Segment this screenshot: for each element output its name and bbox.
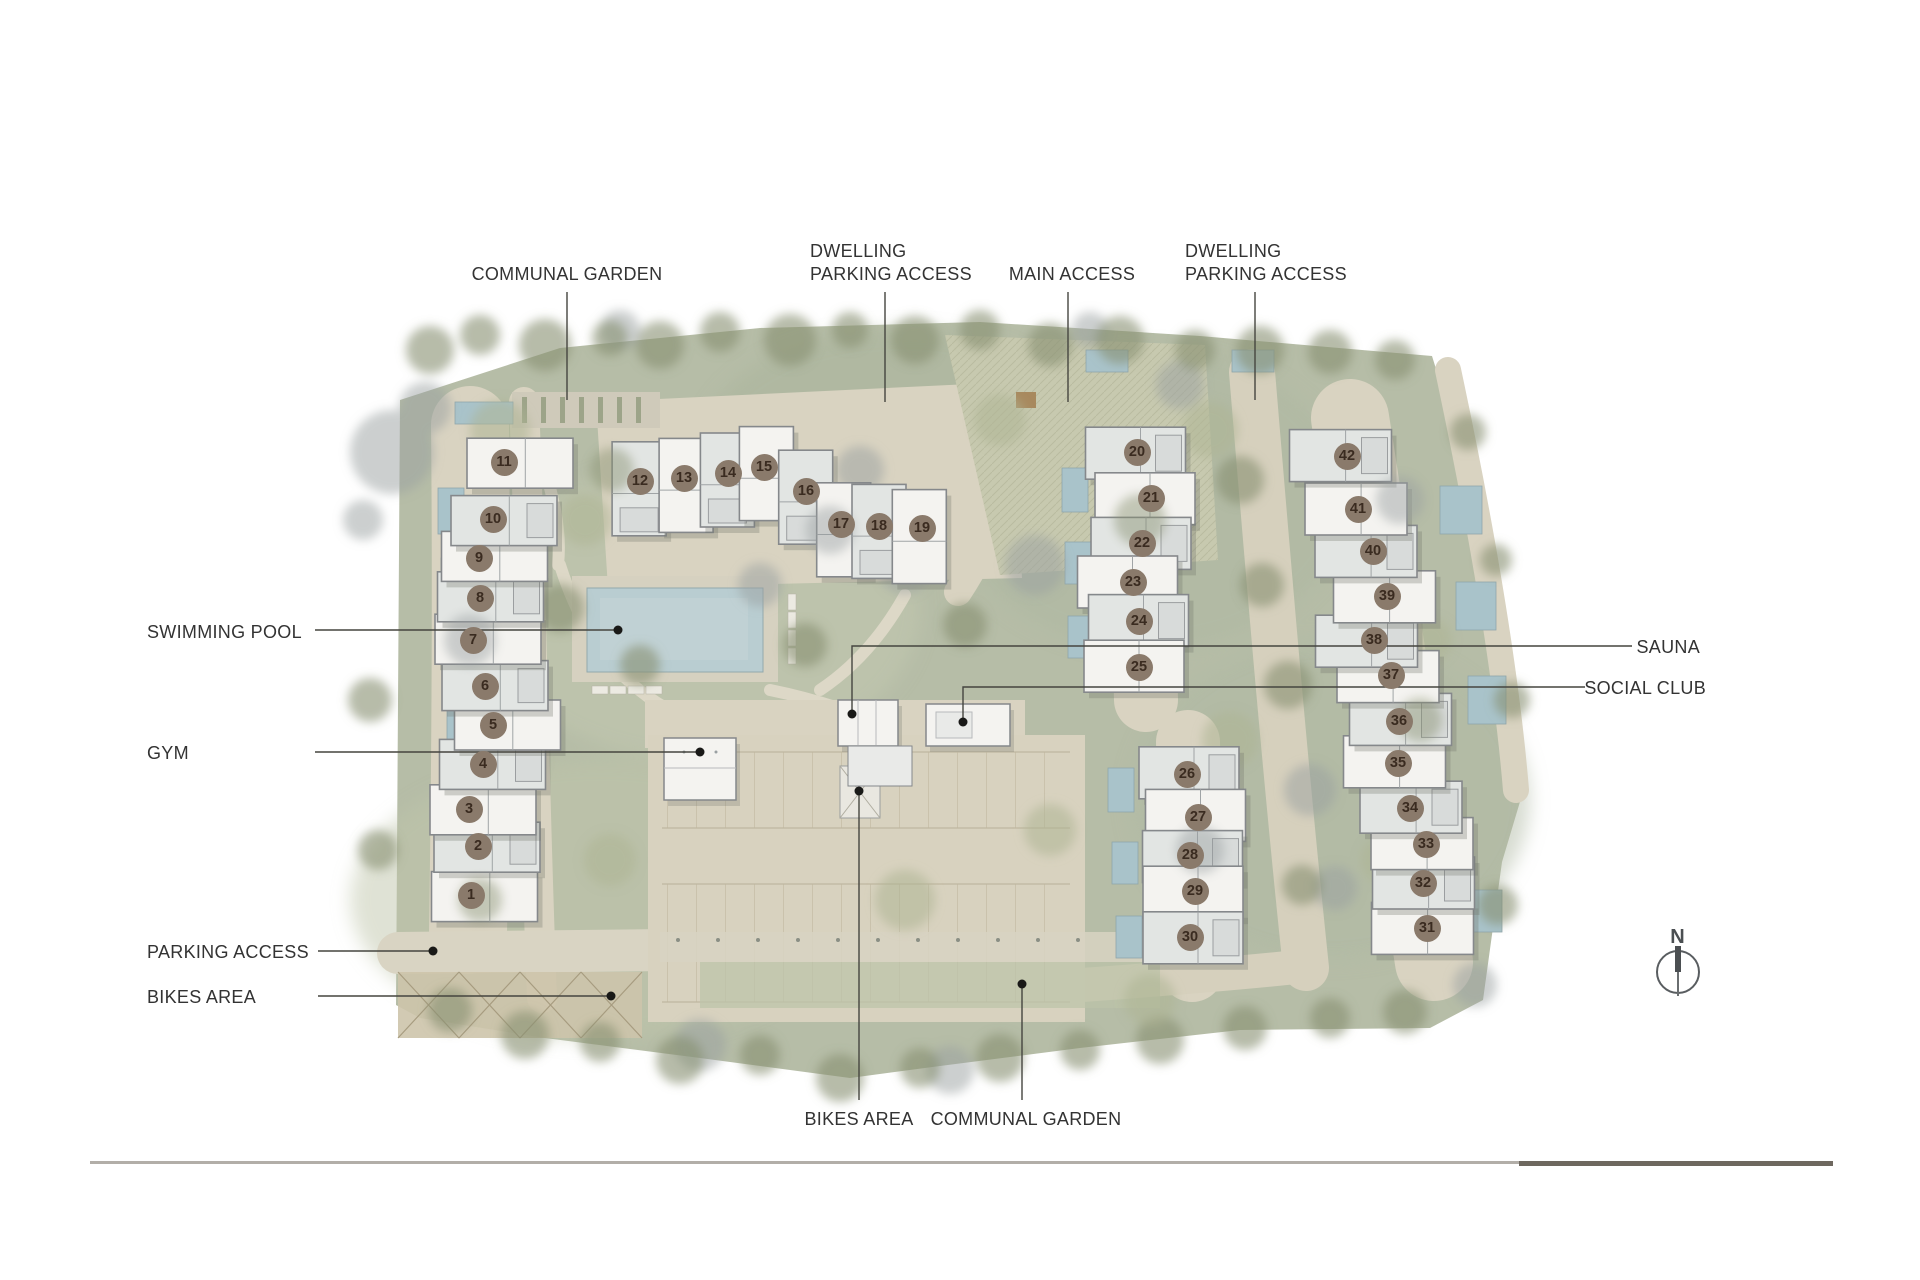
unit-marker-30: 30 [1177, 924, 1204, 951]
compass-north-indicator: N [1656, 926, 1700, 998]
unit-marker-36: 36 [1386, 708, 1413, 735]
leader-communal-garden-bottom [1018, 980, 1027, 1101]
unit-marker-6: 6 [472, 673, 499, 700]
unit-marker-13: 13 [671, 465, 698, 492]
label-communal-garden-bottom-line-1: COMMUNAL GARDEN [931, 1108, 1122, 1131]
scale-bar-dark-segment [1519, 1161, 1833, 1166]
unit-marker-40: 40 [1360, 538, 1387, 565]
unit-marker-32: 32 [1410, 870, 1437, 897]
label-gym-line-1: GYM [147, 742, 189, 765]
label-social-club-line-1: SOCIAL CLUB [1584, 677, 1706, 700]
label-bikes-area-bottom-line-1: BIKES AREA [804, 1108, 913, 1131]
label-dwelling-parking-access-right: DWELLINGPARKING ACCESS [1185, 240, 1347, 286]
unit-marker-5: 5 [480, 712, 507, 739]
label-main-access: MAIN ACCESS [1009, 263, 1135, 286]
site-plan-canvas: 1234567891011121314151617181920212223242… [0, 0, 1920, 1280]
unit-marker-3: 3 [456, 796, 483, 823]
label-sauna: SAUNA [1636, 636, 1700, 659]
label-swimming-pool: SWIMMING POOL [147, 621, 302, 644]
unit-marker-9: 9 [466, 545, 493, 572]
unit-marker-12: 12 [627, 468, 654, 495]
compass-needle-tail [1677, 972, 1679, 996]
unit-marker-7: 7 [460, 627, 487, 654]
label-communal-garden-top-line-1: COMMUNAL GARDEN [472, 263, 663, 286]
label-sauna-line-1: SAUNA [1636, 636, 1700, 659]
unit-marker-11: 11 [491, 449, 518, 476]
label-dwelling-parking-access-right-line-1: DWELLING [1185, 240, 1347, 263]
label-bikes-area-bottom: BIKES AREA [804, 1108, 913, 1131]
unit-marker-1: 1 [458, 882, 485, 909]
unit-marker-4: 4 [470, 751, 497, 778]
unit-marker-39: 39 [1374, 583, 1401, 610]
unit-marker-2: 2 [465, 833, 492, 860]
unit-marker-28: 28 [1177, 842, 1204, 869]
unit-marker-37: 37 [1378, 662, 1405, 689]
unit-marker-27: 27 [1185, 804, 1212, 831]
leader-gym [315, 748, 705, 757]
unit-marker-26: 26 [1174, 761, 1201, 788]
unit-marker-33: 33 [1413, 831, 1440, 858]
unit-marker-31: 31 [1414, 915, 1441, 942]
leader-social-club [959, 687, 1586, 727]
unit-marker-16: 16 [793, 478, 820, 505]
label-dwelling-parking-access-left: DWELLINGPARKING ACCESS [810, 240, 972, 286]
compass-needle-icon [1675, 946, 1681, 972]
leader-bikes-area-left [318, 992, 616, 1001]
unit-marker-19: 19 [909, 515, 936, 542]
unit-marker-17: 17 [828, 511, 855, 538]
leader-bikes-area-bottom [855, 787, 864, 1101]
label-parking-access-line-1: PARKING ACCESS [147, 941, 309, 964]
unit-marker-34: 34 [1397, 795, 1424, 822]
label-communal-garden-top: COMMUNAL GARDEN [472, 263, 663, 286]
label-social-club: SOCIAL CLUB [1584, 677, 1706, 700]
unit-marker-42: 42 [1334, 443, 1361, 470]
unit-marker-14: 14 [715, 460, 742, 487]
unit-marker-10: 10 [480, 506, 507, 533]
label-gym: GYM [147, 742, 189, 765]
unit-marker-20: 20 [1124, 439, 1151, 466]
label-communal-garden-bottom: COMMUNAL GARDEN [931, 1108, 1122, 1131]
unit-marker-25: 25 [1126, 654, 1153, 681]
label-swimming-pool-line-1: SWIMMING POOL [147, 621, 302, 644]
unit-marker-22: 22 [1129, 530, 1156, 557]
unit-marker-35: 35 [1385, 750, 1412, 777]
leader-parking-access [318, 947, 438, 956]
scale-bar [90, 1161, 1836, 1167]
scale-bar-light-segment [90, 1161, 1519, 1164]
label-dwelling-parking-access-left-line-2: PARKING ACCESS [810, 263, 972, 286]
unit-marker-24: 24 [1126, 608, 1153, 635]
unit-marker-23: 23 [1120, 569, 1147, 596]
label-bikes-area-left-line-1: BIKES AREA [147, 986, 256, 1009]
label-main-access-line-1: MAIN ACCESS [1009, 263, 1135, 286]
unit-marker-41: 41 [1345, 496, 1372, 523]
unit-marker-29: 29 [1182, 878, 1209, 905]
label-dwelling-parking-access-right-line-2: PARKING ACCESS [1185, 263, 1347, 286]
label-dwelling-parking-access-left-line-1: DWELLING [810, 240, 972, 263]
unit-marker-15: 15 [751, 454, 778, 481]
label-parking-access: PARKING ACCESS [147, 941, 309, 964]
unit-marker-21: 21 [1138, 485, 1165, 512]
leader-sauna [848, 646, 1633, 719]
unit-marker-8: 8 [467, 585, 494, 612]
unit-marker-38: 38 [1361, 627, 1388, 654]
label-bikes-area-left: BIKES AREA [147, 986, 256, 1009]
unit-marker-18: 18 [866, 513, 893, 540]
